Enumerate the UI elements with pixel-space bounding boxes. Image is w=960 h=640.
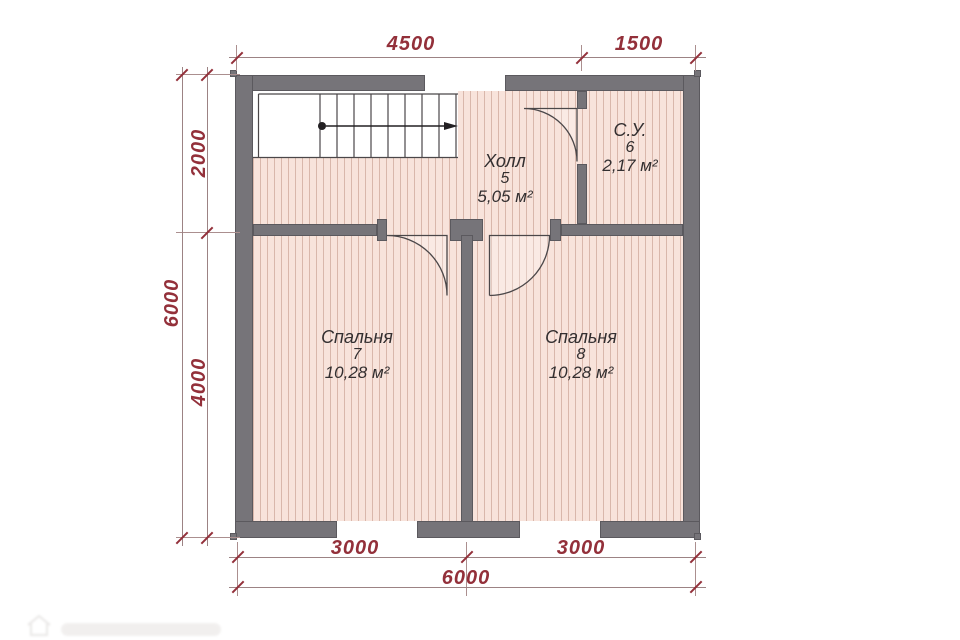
room-area: 2,17 м² bbox=[577, 157, 683, 175]
room-number: 5 bbox=[445, 170, 565, 188]
wall-bottom-segment-1 bbox=[235, 521, 337, 538]
floor-plan-canvas: Холл 5 5,05 м² С.У. 6 2,17 м² Спальня 7 … bbox=[0, 0, 960, 640]
corner-marker-bottom-right bbox=[694, 533, 701, 540]
room-name: Холл bbox=[445, 152, 565, 170]
room-name: Спальня bbox=[511, 328, 651, 346]
plan-linework bbox=[0, 0, 960, 640]
wall-exterior-left bbox=[235, 75, 253, 538]
room-label-bathroom: С.У. 6 2,17 м² bbox=[577, 121, 683, 175]
dimension-value-top-right: 1500 bbox=[589, 33, 689, 53]
dimension-value-left-total: 6000 bbox=[161, 253, 181, 353]
wall-hall-divider-right bbox=[561, 224, 683, 236]
wall-end-cap-right-door bbox=[550, 219, 561, 241]
room-number: 6 bbox=[577, 139, 683, 157]
wall-exterior-right bbox=[683, 75, 700, 538]
wall-top-right-of-window bbox=[505, 75, 700, 91]
dimension-value-bottom-left: 3000 bbox=[305, 537, 405, 557]
wall-bottom-segment-2 bbox=[417, 521, 520, 538]
wall-bottom-segment-3 bbox=[600, 521, 700, 538]
dimension-line-top bbox=[229, 57, 706, 58]
wall-top-left-of-window bbox=[235, 75, 425, 91]
room-label-bedroom-8: Спальня 8 10,28 м² bbox=[511, 328, 651, 382]
corner-marker-top-right bbox=[694, 70, 701, 77]
door-swing-bedroom7 bbox=[387, 236, 447, 296]
room-name: Спальня bbox=[287, 328, 427, 346]
dimension-value-bottom-total: 6000 bbox=[416, 567, 516, 587]
wall-hall-divider-left bbox=[253, 224, 377, 236]
dimension-value-bottom-right: 3000 bbox=[531, 537, 631, 557]
dimension-value-left-upper: 2000 bbox=[188, 103, 208, 203]
dimension-value-top-left: 4500 bbox=[361, 33, 461, 53]
room-label-bedroom-7: Спальня 7 10,28 м² bbox=[287, 328, 427, 382]
room-area: 10,28 м² bbox=[511, 364, 651, 382]
room-area: 10,28 м² bbox=[287, 364, 427, 382]
room-label-hall: Холл 5 5,05 м² bbox=[445, 152, 565, 206]
wall-bathroom-stub-top bbox=[577, 91, 587, 109]
room-name: С.У. bbox=[577, 121, 683, 139]
wall-end-cap-left-door bbox=[377, 219, 387, 241]
door-swing-bedroom8 bbox=[490, 236, 550, 296]
room-area: 5,05 м² bbox=[445, 188, 565, 206]
room-number: 8 bbox=[511, 346, 651, 364]
arrow-start-dot bbox=[318, 122, 326, 130]
room-number: 7 bbox=[287, 346, 427, 364]
dimension-value-left-lower: 4000 bbox=[188, 332, 208, 432]
wall-bedroom-divider bbox=[461, 235, 473, 522]
